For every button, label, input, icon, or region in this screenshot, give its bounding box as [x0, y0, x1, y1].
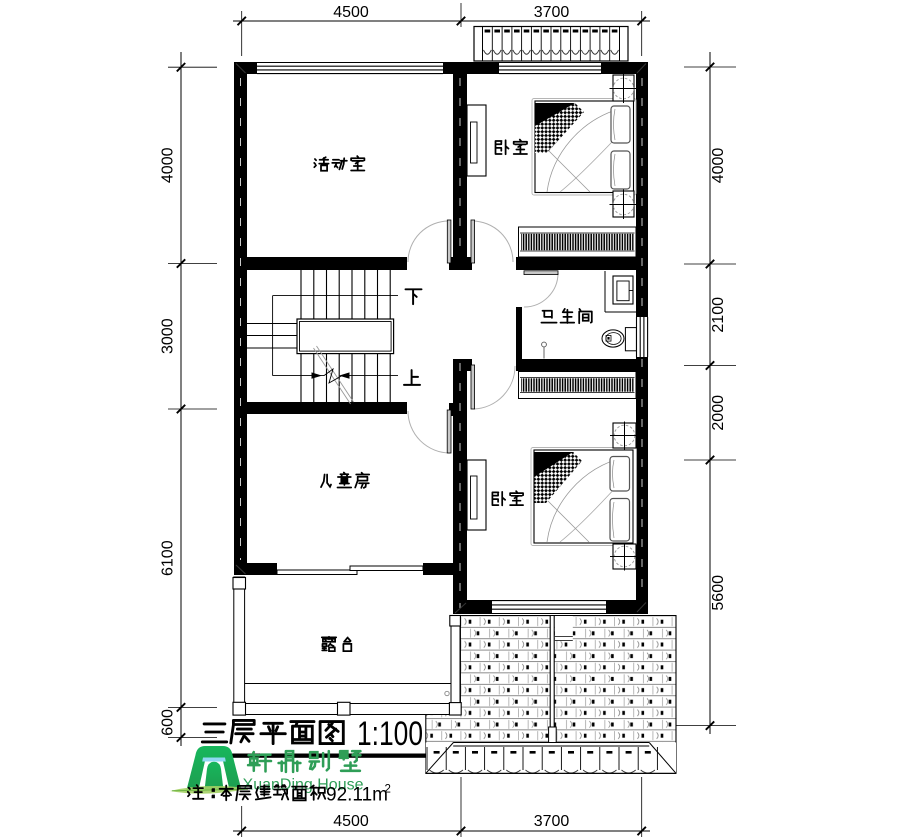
svg-text:3000: 3000 — [160, 318, 177, 354]
svg-text:2: 2 — [385, 784, 391, 796]
svg-text:3700: 3700 — [534, 813, 570, 830]
svg-text:3700: 3700 — [534, 4, 570, 21]
svg-text:6100: 6100 — [160, 540, 177, 576]
svg-text:4000: 4000 — [710, 148, 727, 184]
svg-text:2100: 2100 — [710, 297, 727, 333]
svg-text:600: 600 — [160, 709, 177, 736]
svg-text:4000: 4000 — [160, 147, 177, 183]
svg-text:1:100: 1:100 — [357, 715, 423, 753]
svg-text:5600: 5600 — [710, 575, 727, 611]
svg-text:4500: 4500 — [333, 4, 369, 21]
svg-text:92.11m: 92.11m — [326, 785, 388, 806]
svg-text:4500: 4500 — [333, 813, 369, 830]
svg-text:2000: 2000 — [710, 395, 727, 431]
